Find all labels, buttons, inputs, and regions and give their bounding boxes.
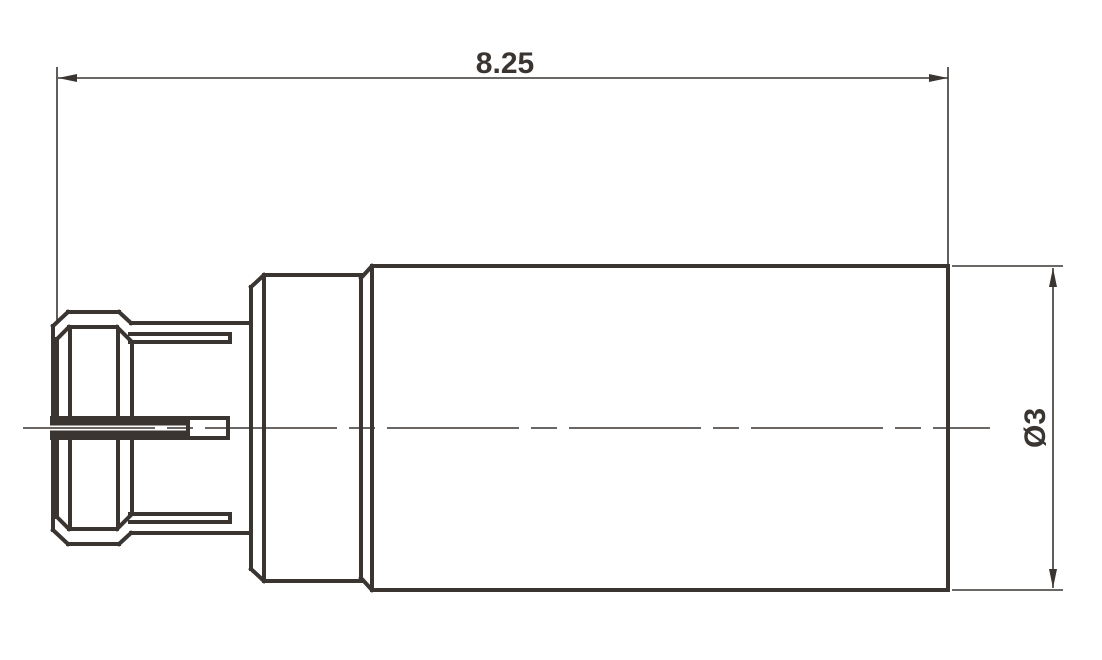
arrowhead-down-icon (1049, 569, 1057, 588)
arrowhead-up-icon (1049, 268, 1057, 287)
length-dimension: 8.25 (57, 47, 948, 322)
collet-bottom-left-chamfer (53, 530, 68, 544)
collet-top-left-chamfer (53, 312, 68, 326)
arrowhead-left-icon (58, 74, 77, 82)
technical-drawing-canvas: 8.25 Ø3 (0, 0, 1102, 660)
length-dimension-value: 8.25 (476, 47, 534, 80)
diameter-dimension-value: Ø3 (1019, 408, 1052, 448)
connector-side-view-drawing: 8.25 Ø3 (0, 0, 1102, 660)
arrowhead-right-icon (929, 74, 948, 82)
